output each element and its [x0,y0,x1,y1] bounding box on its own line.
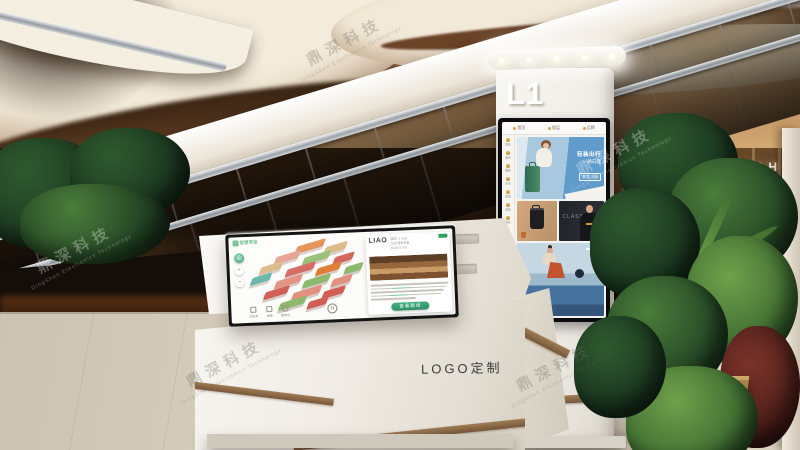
category-icon [506,151,510,155]
led-spot-icon [526,55,533,62]
sidebar-label: 影院 [505,195,511,199]
category-icon [506,190,510,194]
kiosk-front-label: LOGO定制 [421,357,503,377]
wayfinder-ui: 智慧导览 ◎ + − 卫生间 扶梯 服务台 N LIAO [228,228,455,323]
legend-label: 扶梯 [267,314,273,319]
sidebar-item[interactable]: 服饰 [504,164,512,174]
store-info: 楼层 L1·108 业态 服饰零售 10:00-22:00 [390,236,409,250]
map-legend: 卫生间 扶梯 服务台 [247,305,292,320]
sidebar-item[interactable]: 影院 [504,190,512,200]
tab-label: 品牌 [587,125,595,131]
speaker-grille [453,234,479,245]
model-head [586,205,593,213]
store-description [370,280,449,303]
led-light-bar [488,46,627,71]
green-suitcase [525,166,540,192]
service-desk-icon [282,305,288,311]
escalator-icon [266,306,272,312]
led-spot-icon [498,56,505,63]
legend-item[interactable]: 扶梯 [265,306,274,319]
text-line [371,292,441,296]
tab-label: 首页 [517,125,525,131]
store-photo [369,254,448,281]
sidebar-label: 会员 [505,208,511,212]
map-block [306,296,329,310]
signage-tab[interactable]: 首页 [513,125,525,131]
led-spot-icon [553,54,560,61]
signage-tab[interactable]: 楼层 [548,125,560,131]
floor-label: L1 [506,76,544,112]
legend-item[interactable]: 卫生间 [247,306,260,319]
mall-scene: MUCH L1 [0,0,800,450]
led-spot-icon [581,53,588,60]
text-line [371,297,416,300]
hero-banner[interactable]: 轻装出行 一路向夏 查看详情 [517,137,604,199]
tab-icon [583,127,586,130]
category-icon [506,203,510,207]
compass-icon: N [327,303,337,313]
store-open-badge [438,234,447,238]
car-wheel [575,269,584,278]
tab-label: 楼层 [552,125,560,131]
legend-item[interactable]: 服务台 [279,305,292,318]
legend-label: 卫生间 [249,314,258,319]
sidebar-label: 导览 [505,143,511,147]
sidebar-item[interactable]: 美食 [504,151,512,161]
restroom-icon [250,307,256,313]
sidebar-item[interactable]: 导览 [504,138,512,148]
sidebar-label: 美食 [505,156,511,160]
wayfinding-kiosk: LOGO定制 [185,218,545,450]
escalator-soffit-upper-left [0,0,254,100]
route-button[interactable]: 查看路线 [391,301,429,311]
model-blouse [536,148,552,167]
legend-label: 服务台 [281,313,290,318]
tab-icon [548,127,551,130]
sidebar-label: 服饰 [505,169,511,173]
sidebar-item[interactable]: 会员 [504,203,512,213]
signage-nav-bar: 首页 楼层 品牌 [502,122,606,135]
kiosk-plinth [207,434,513,448]
plants-right [598,118,800,438]
category-icon [506,177,510,181]
sidebar-item[interactable]: 亲子 [504,177,512,187]
plant [20,184,170,264]
signage-tab[interactable]: 品牌 [583,125,595,131]
tab-icon [513,127,516,130]
store-info-line: 10:00-22:00 [391,245,410,250]
led-spot-icon [609,52,616,59]
touch-screen[interactable]: 智慧导览 ◎ + − 卫生间 扶梯 服务台 N LIAO [225,225,459,327]
wood-accent-stripe [189,381,334,406]
category-icon [506,138,510,142]
sidebar-label: 亲子 [505,182,511,186]
category-icon [506,164,510,168]
